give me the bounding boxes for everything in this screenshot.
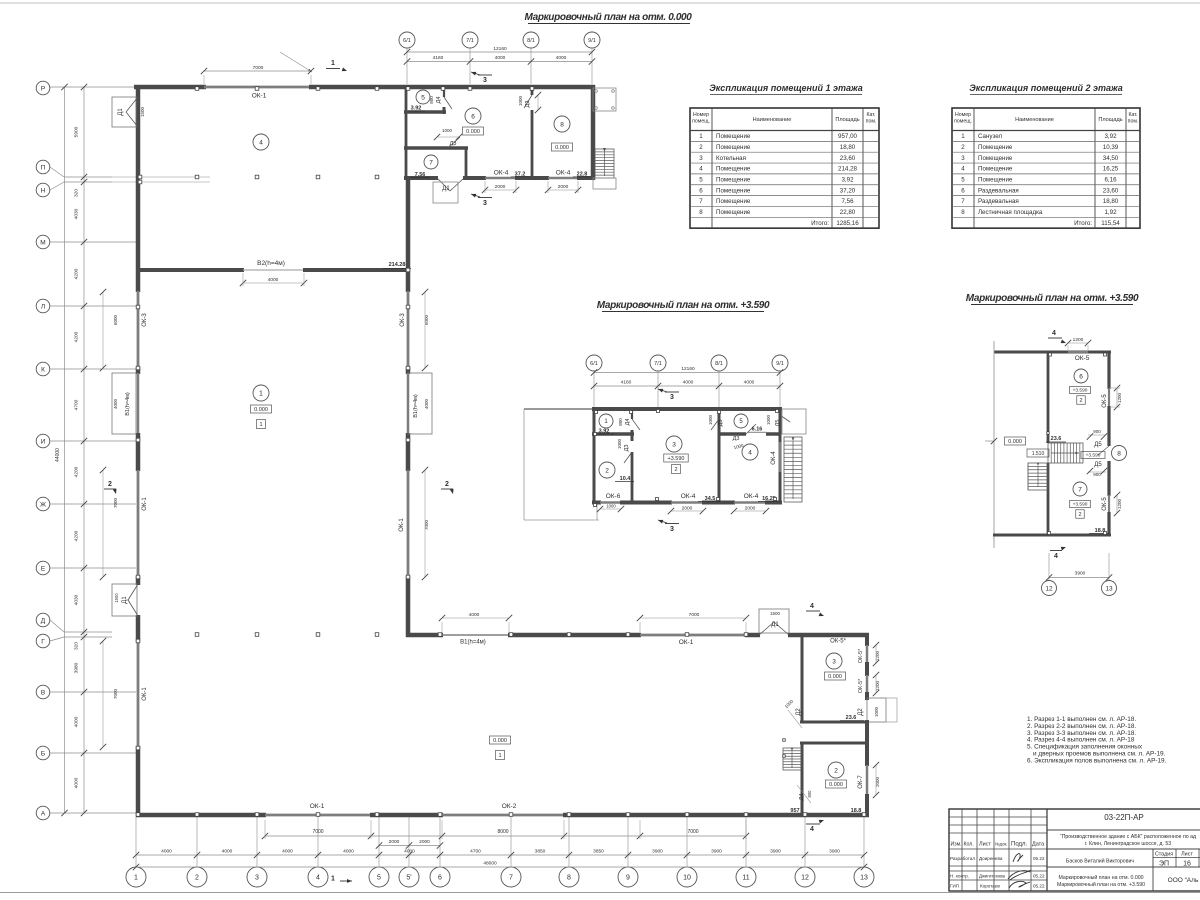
svg-text:ГИП: ГИП xyxy=(950,884,959,889)
svg-text:Номер: Номер xyxy=(955,112,971,118)
svg-text:6: 6 xyxy=(438,875,442,882)
svg-text:Д4: Д4 xyxy=(625,419,631,426)
svg-text:4000: 4000 xyxy=(113,398,118,409)
svg-text:3900: 3900 xyxy=(829,849,840,855)
svg-text:1: 1 xyxy=(259,391,263,398)
svg-text:1000: 1000 xyxy=(784,698,795,709)
svg-text:Лестничная площадка: Лестничная площадка xyxy=(978,209,1043,216)
svg-text:4000: 4000 xyxy=(343,849,354,855)
svg-text:4000: 4000 xyxy=(282,849,293,855)
svg-text:1: 1 xyxy=(259,422,262,428)
svg-text:ОК-3: ОК-3 xyxy=(400,313,406,327)
svg-text:Ж: Ж xyxy=(40,501,46,508)
svg-text:5: 5 xyxy=(377,875,381,882)
svg-text:3900: 3900 xyxy=(1075,571,1086,577)
svg-text:7/1: 7/1 xyxy=(654,361,662,367)
svg-text:Д3: Д3 xyxy=(718,420,724,427)
svg-text:“Производственное здание с АБК: “Производственное здание с АБК” располож… xyxy=(1060,834,1196,840)
svg-text:4000: 4000 xyxy=(744,380,755,386)
svg-text:2: 2 xyxy=(195,875,199,882)
svg-text:Помещение: Помещение xyxy=(716,187,751,194)
svg-text:6. Экспликация полов выполнена: 6. Экспликация полов выполнена см. л. АР… xyxy=(1027,757,1167,764)
svg-text:8/1: 8/1 xyxy=(715,361,723,367)
svg-text:03-22П-АР: 03-22П-АР xyxy=(1104,813,1144,822)
svg-text:+3.590: +3.590 xyxy=(1086,453,1101,459)
svg-text:ОК-1: ОК-1 xyxy=(142,687,148,701)
svg-text:ЭП: ЭП xyxy=(1159,861,1169,868)
svg-text:В: В xyxy=(41,689,45,696)
svg-text:пом.: пом. xyxy=(866,119,877,125)
svg-text:3.92: 3.92 xyxy=(599,429,610,435)
svg-text:Д4: Д4 xyxy=(799,794,805,801)
svg-text:4160: 4160 xyxy=(621,380,632,386)
svg-text:ОК-4: ОК-4 xyxy=(494,170,509,177)
svg-text:320: 320 xyxy=(74,189,80,197)
svg-text:ОК-5*: ОК-5* xyxy=(830,639,846,645)
svg-text:ОК-4: ОК-4 xyxy=(771,451,777,465)
svg-text:7: 7 xyxy=(961,198,965,205)
svg-text:Д5: Д5 xyxy=(1094,442,1102,448)
svg-text:3: 3 xyxy=(483,200,487,207)
svg-text:ОК-1: ОК-1 xyxy=(399,518,405,532)
svg-text:Подл.: Подл. xyxy=(1011,842,1028,848)
svg-text:3900: 3900 xyxy=(652,849,663,855)
svg-text:ОК-7: ОК-7 xyxy=(858,775,864,789)
svg-text:4000: 4000 xyxy=(424,398,429,409)
svg-text:320: 320 xyxy=(74,642,80,650)
svg-text:4030: 4030 xyxy=(74,208,80,219)
svg-text:2: 2 xyxy=(834,767,838,774)
svg-text:1200: 1200 xyxy=(1117,392,1122,403)
svg-text:4200: 4200 xyxy=(74,331,80,342)
svg-text:0.000: 0.000 xyxy=(555,145,569,151)
svg-text:ОК-3: ОК-3 xyxy=(142,313,148,327)
svg-text:214,28: 214,28 xyxy=(838,166,857,173)
svg-text:ОК-1: ОК-1 xyxy=(679,639,694,646)
svg-text:4030: 4030 xyxy=(74,594,80,605)
svg-text:7000: 7000 xyxy=(689,612,700,618)
svg-text:7000: 7000 xyxy=(253,65,264,71)
svg-text:0.000: 0.000 xyxy=(1008,439,1022,445)
svg-text:ОК-1: ОК-1 xyxy=(310,803,325,810)
svg-text:ОК-5: ОК-5 xyxy=(1075,355,1090,362)
svg-text:7.56: 7.56 xyxy=(415,172,426,178)
svg-text:05.22: 05.22 xyxy=(1033,856,1045,861)
svg-text:1500: 1500 xyxy=(140,106,145,117)
svg-text:1: 1 xyxy=(498,753,501,759)
svg-text:1000: 1000 xyxy=(617,438,622,449)
svg-text:Помещение: Помещение xyxy=(978,177,1013,184)
svg-text:4: 4 xyxy=(810,603,814,610)
svg-text:9: 9 xyxy=(626,875,630,882)
svg-text:214.28: 214.28 xyxy=(389,262,406,268)
svg-text:1000: 1000 xyxy=(874,706,879,717)
svg-text:Площадь: Площадь xyxy=(835,117,859,123)
svg-text:помещ.: помещ. xyxy=(692,119,710,125)
svg-text:05.22: 05.22 xyxy=(1033,884,1045,889)
svg-text:Кат.: Кат. xyxy=(1128,112,1137,118)
svg-text:4000: 4000 xyxy=(161,849,172,855)
svg-text:12: 12 xyxy=(801,875,809,882)
svg-text:2: 2 xyxy=(445,481,449,488)
svg-text:1200: 1200 xyxy=(1073,337,1084,343)
svg-text:Помещение: Помещение xyxy=(716,166,751,173)
svg-text:1: 1 xyxy=(699,133,703,140)
svg-text:957,00: 957,00 xyxy=(838,133,857,140)
svg-text:помещ.: помещ. xyxy=(954,119,972,125)
svg-text:4000: 4000 xyxy=(683,380,694,386)
svg-text:5: 5 xyxy=(961,177,965,184)
svg-text:7000: 7000 xyxy=(312,829,323,835)
svg-text:2000: 2000 xyxy=(745,506,756,512)
svg-text:18,80: 18,80 xyxy=(840,144,856,151)
svg-text:Д2: Д2 xyxy=(796,708,802,716)
svg-text:Джигитекова: Джигитекова xyxy=(979,874,1006,879)
svg-text:Кат.: Кат. xyxy=(866,112,875,118)
svg-text:Раздевальная: Раздевальная xyxy=(978,198,1019,205)
svg-text:0.000: 0.000 xyxy=(493,738,507,744)
svg-text:В1(h=4м): В1(h=4м) xyxy=(125,392,131,416)
svg-text:Г: Г xyxy=(41,638,45,645)
svg-text:3850: 3850 xyxy=(593,849,604,855)
svg-text:8: 8 xyxy=(567,875,571,882)
svg-text:1000: 1000 xyxy=(442,128,453,133)
svg-text:ОК-5*: ОК-5* xyxy=(858,678,864,693)
svg-text:6: 6 xyxy=(961,187,965,194)
svg-text:22,80: 22,80 xyxy=(840,209,856,216)
svg-text:3900: 3900 xyxy=(770,849,781,855)
svg-text:Маркировочный план на отм. 0.0: Маркировочный план на отм. 0.000 xyxy=(525,12,693,23)
svg-text:4700: 4700 xyxy=(74,399,80,410)
svg-text:7000: 7000 xyxy=(113,688,118,699)
svg-text:0.000: 0.000 xyxy=(466,129,480,135)
svg-text:5: 5 xyxy=(421,94,425,101)
svg-text:7: 7 xyxy=(1078,486,1082,493)
svg-text:16: 16 xyxy=(1183,861,1191,868)
svg-text:1000: 1000 xyxy=(606,504,616,509)
svg-text:1500: 1500 xyxy=(114,593,119,603)
svg-text:7: 7 xyxy=(429,159,433,166)
svg-text:В1(h=4м): В1(h=4м) xyxy=(460,640,486,646)
svg-text:Д5: Д5 xyxy=(775,420,781,427)
svg-text:Басков Виталий Викторович: Басков Виталий Викторович xyxy=(1066,858,1134,865)
svg-text:48000: 48000 xyxy=(483,861,497,867)
svg-text:3: 3 xyxy=(670,394,674,401)
svg-text:Раздевальная: Раздевальная xyxy=(978,187,1019,194)
svg-text:3850: 3850 xyxy=(535,849,546,855)
svg-text:2: 2 xyxy=(961,144,965,151)
svg-text:900: 900 xyxy=(1093,429,1101,434)
svg-text:№док.: №док. xyxy=(995,842,1008,847)
svg-text:8000: 8000 xyxy=(497,829,508,835)
svg-text:Д3: Д3 xyxy=(624,445,630,452)
svg-text:4200: 4200 xyxy=(74,268,80,279)
svg-text:6/1: 6/1 xyxy=(590,361,598,367)
svg-text:900: 900 xyxy=(1093,472,1101,477)
svg-text:3: 3 xyxy=(961,155,965,162)
svg-text:6: 6 xyxy=(699,187,703,194)
svg-text:8: 8 xyxy=(560,121,564,128)
svg-text:г. Клин, Ленинградское шоссе,: г. Клин, Ленинградское шоссе, д. 53 xyxy=(1085,841,1171,847)
svg-text:5': 5' xyxy=(406,875,411,882)
svg-text:4: 4 xyxy=(316,875,320,882)
svg-text:Маркировочный план на отм. 0.0: Маркировочный план на отм. 0.000 xyxy=(1059,874,1144,881)
svg-text:Е: Е xyxy=(41,565,46,572)
svg-text:1000: 1000 xyxy=(518,95,523,106)
svg-text:6: 6 xyxy=(471,113,475,120)
svg-text:16,25: 16,25 xyxy=(1103,166,1119,173)
svg-text:1,92: 1,92 xyxy=(1104,209,1117,216)
svg-text:4: 4 xyxy=(748,449,752,456)
svg-text:0.000: 0.000 xyxy=(829,782,843,788)
svg-text:6000: 6000 xyxy=(113,314,118,325)
svg-text:Д5: Д5 xyxy=(1094,462,1102,468)
svg-text:6,16: 6,16 xyxy=(1104,177,1117,184)
svg-text:Помещение: Помещение xyxy=(978,166,1013,173)
svg-text:Д2: Д2 xyxy=(858,708,864,716)
svg-text:6: 6 xyxy=(1079,373,1083,380)
svg-text:Маркировочный план на отм. +3.: Маркировочный план на отм. +3.590 xyxy=(966,293,1139,304)
svg-text:+3.590: +3.590 xyxy=(668,456,685,462)
svg-text:1000: 1000 xyxy=(766,414,771,425)
svg-text:2: 2 xyxy=(699,144,703,151)
svg-text:2000: 2000 xyxy=(495,184,506,190)
svg-text:Помещение: Помещение xyxy=(716,198,751,205)
svg-text:3: 3 xyxy=(832,658,836,665)
svg-text:9/1: 9/1 xyxy=(588,38,596,44)
svg-text:ООО “Аль: ООО “Аль xyxy=(1168,877,1199,884)
svg-text:Номер: Номер xyxy=(693,112,709,118)
svg-text:3: 3 xyxy=(255,875,259,882)
svg-text:8: 8 xyxy=(1117,450,1121,457)
svg-text:Д3: Д3 xyxy=(733,436,740,442)
svg-text:2000: 2000 xyxy=(389,839,400,845)
svg-text:2000: 2000 xyxy=(419,839,430,845)
svg-text:7000: 7000 xyxy=(113,497,118,508)
svg-text:ОК-4: ОК-4 xyxy=(744,493,759,500)
svg-text:13: 13 xyxy=(860,875,868,882)
svg-text:12160: 12160 xyxy=(681,366,695,372)
svg-text:8: 8 xyxy=(699,209,703,216)
svg-text:23,60: 23,60 xyxy=(1103,187,1119,194)
svg-text:ОК-5: ОК-5 xyxy=(1102,394,1108,408)
svg-text:пом.: пом. xyxy=(1128,119,1139,125)
svg-text:Помещение: Помещение xyxy=(978,155,1013,162)
svg-text:1: 1 xyxy=(331,876,335,883)
svg-text:44000: 44000 xyxy=(55,448,61,462)
svg-text:Площадь: Площадь xyxy=(1098,117,1122,123)
svg-text:4200: 4200 xyxy=(74,466,80,477)
svg-text:ОК-1: ОК-1 xyxy=(142,497,148,511)
svg-text:0.000: 0.000 xyxy=(254,407,268,413)
svg-text:3980: 3980 xyxy=(74,662,80,673)
svg-text:Р: Р xyxy=(41,85,45,92)
svg-text:18,80: 18,80 xyxy=(1103,198,1119,205)
svg-text:7: 7 xyxy=(699,198,703,205)
svg-text:9/1: 9/1 xyxy=(776,361,784,367)
svg-text:800: 800 xyxy=(618,418,623,426)
svg-text:1000: 1000 xyxy=(708,414,713,425)
svg-text:115,54: 115,54 xyxy=(1101,220,1120,227)
svg-text:5: 5 xyxy=(699,177,703,184)
svg-text:Наименование: Наименование xyxy=(1015,117,1054,123)
svg-text:4000: 4000 xyxy=(556,55,567,61)
svg-text:4000: 4000 xyxy=(404,849,415,855)
svg-text:ОК-1: ОК-1 xyxy=(252,93,267,100)
svg-text:4: 4 xyxy=(259,139,263,146)
svg-text:Помещение: Помещение xyxy=(716,144,751,151)
svg-text:Коротаев: Коротаев xyxy=(980,884,1000,889)
svg-text:957: 957 xyxy=(790,808,799,814)
svg-text:4: 4 xyxy=(1052,330,1056,337)
svg-text:Лист: Лист xyxy=(1181,852,1193,858)
svg-text:Кол.: Кол. xyxy=(964,842,974,848)
svg-text:7: 7 xyxy=(509,875,513,882)
svg-text:Д1: Д1 xyxy=(442,186,450,192)
svg-text:М: М xyxy=(40,239,45,246)
svg-text:2000: 2000 xyxy=(558,184,569,190)
svg-text:ОК-2: ОК-2 xyxy=(502,803,517,810)
svg-text:В1(h=4м): В1(h=4м) xyxy=(413,394,419,418)
svg-text:3,92: 3,92 xyxy=(841,177,854,184)
svg-text:3: 3 xyxy=(699,155,703,162)
svg-text:800: 800 xyxy=(429,96,434,104)
svg-text:ОК-4: ОК-4 xyxy=(681,493,696,500)
svg-text:3.92: 3.92 xyxy=(411,106,422,112)
svg-text:4000: 4000 xyxy=(268,277,279,283)
svg-text:23.6: 23.6 xyxy=(1051,436,1062,442)
svg-text:Д: Д xyxy=(41,617,46,624)
svg-text:23.6: 23.6 xyxy=(846,715,857,721)
svg-text:10,39: 10,39 xyxy=(1103,144,1119,151)
svg-text:12160: 12160 xyxy=(493,46,507,52)
svg-text:6/1: 6/1 xyxy=(403,38,411,44)
svg-text:К: К xyxy=(41,366,45,373)
svg-text:10: 10 xyxy=(683,875,691,882)
svg-text:Экспликация помещений 1 этажа: Экспликация помещений 1 этажа xyxy=(709,83,862,93)
svg-text:А: А xyxy=(41,810,46,817)
svg-text:Д1: Д1 xyxy=(122,596,128,604)
svg-text:34.5: 34.5 xyxy=(705,496,716,502)
svg-text:Экспликация помещений 2 этажа: Экспликация помещений 2 этажа xyxy=(969,83,1122,93)
svg-text:37,20: 37,20 xyxy=(840,187,856,194)
svg-text:И: И xyxy=(41,438,46,445)
svg-text:8/1: 8/1 xyxy=(527,38,535,44)
svg-text:2000: 2000 xyxy=(682,506,693,512)
svg-text:12: 12 xyxy=(1045,585,1053,592)
svg-text:3,92: 3,92 xyxy=(1104,133,1117,140)
svg-text:Маркировочный план на отм. +3.: Маркировочный план на отм. +3.590 xyxy=(597,300,770,311)
svg-text:Доиренева: Доиренева xyxy=(979,856,1003,861)
svg-text:3900: 3900 xyxy=(711,849,722,855)
svg-text:Д4: Д4 xyxy=(436,97,442,104)
svg-text:4: 4 xyxy=(699,166,703,173)
svg-text:Наименование: Наименование xyxy=(753,117,792,123)
svg-text:4700: 4700 xyxy=(470,849,481,855)
svg-text:05.22: 05.22 xyxy=(1033,874,1045,879)
svg-text:4: 4 xyxy=(810,826,814,833)
svg-text:1285,16: 1285,16 xyxy=(836,220,859,227)
svg-text:Б: Б xyxy=(41,750,45,757)
svg-text:+3.590: +3.590 xyxy=(1073,388,1088,394)
svg-text:4000: 4000 xyxy=(74,777,80,788)
svg-text:Помещение: Помещение xyxy=(716,209,751,216)
svg-text:6.16: 6.16 xyxy=(752,427,763,433)
svg-text:18.8: 18.8 xyxy=(851,808,862,814)
svg-text:5900: 5900 xyxy=(74,126,80,137)
svg-text:8: 8 xyxy=(961,209,965,216)
svg-text:1: 1 xyxy=(331,60,335,67)
svg-text:Изм.: Изм. xyxy=(951,842,962,848)
svg-text:ОК-6: ОК-6 xyxy=(606,493,621,500)
svg-text:3: 3 xyxy=(672,441,676,448)
svg-text:0.000: 0.000 xyxy=(828,674,842,680)
svg-text:4000: 4000 xyxy=(495,55,506,61)
svg-text:Котельная: Котельная xyxy=(716,155,746,162)
svg-text:Н: Н xyxy=(41,187,46,194)
svg-text:1500: 1500 xyxy=(770,611,781,616)
svg-text:Н. контр.: Н. контр. xyxy=(950,874,969,879)
svg-text:Дата: Дата xyxy=(1032,842,1045,848)
svg-text:13: 13 xyxy=(1105,585,1113,592)
svg-text:4: 4 xyxy=(961,166,965,173)
svg-text:4160: 4160 xyxy=(433,55,444,61)
svg-text:ОК-4: ОК-4 xyxy=(556,170,571,177)
svg-text:3: 3 xyxy=(483,77,487,84)
svg-text:Л: Л xyxy=(41,303,45,310)
svg-text:Помещение: Помещение xyxy=(716,133,751,140)
svg-text:7000: 7000 xyxy=(687,829,698,835)
svg-text:2: 2 xyxy=(108,481,112,488)
svg-text:2: 2 xyxy=(1079,398,1082,404)
svg-text:23,60: 23,60 xyxy=(840,155,856,162)
svg-text:1: 1 xyxy=(961,133,965,140)
svg-text:1.510: 1.510 xyxy=(1032,451,1045,457)
svg-text:Стадия: Стадия xyxy=(1155,852,1173,858)
svg-text:В2(h=4м): В2(h=4м) xyxy=(257,260,285,267)
svg-text:800: 800 xyxy=(807,790,812,798)
svg-text:3: 3 xyxy=(670,526,674,533)
svg-text:П: П xyxy=(41,164,46,171)
svg-text:Санузел: Санузел xyxy=(978,133,1002,140)
svg-text:4000: 4000 xyxy=(74,716,80,727)
svg-text:7/1: 7/1 xyxy=(466,38,474,44)
svg-text:1: 1 xyxy=(134,875,138,882)
svg-text:Д3: Д3 xyxy=(525,101,531,108)
svg-text:ОК-5: ОК-5 xyxy=(1102,497,1108,511)
svg-text:Итого:: Итого: xyxy=(1074,220,1092,227)
svg-text:2: 2 xyxy=(1078,512,1081,518)
svg-text:ОК-5*: ОК-5* xyxy=(858,648,864,663)
svg-text:Маркировочный план на отм. +3.: Маркировочный план на отм. +3.590 xyxy=(1057,881,1145,888)
svg-text:4000: 4000 xyxy=(222,849,233,855)
svg-text:7,56: 7,56 xyxy=(841,198,854,205)
svg-text:Помещение: Помещение xyxy=(978,144,1013,151)
svg-text:Помещение: Помещение xyxy=(716,177,751,184)
svg-text:11: 11 xyxy=(742,875,749,882)
svg-text:Разработал: Разработал xyxy=(950,856,975,861)
svg-text:2: 2 xyxy=(605,467,609,474)
svg-text:Д1: Д1 xyxy=(771,622,779,628)
svg-text:Лист: Лист xyxy=(979,842,991,848)
svg-text:+3.590: +3.590 xyxy=(1073,502,1088,508)
svg-text:4: 4 xyxy=(1054,553,1058,560)
svg-text:2: 2 xyxy=(674,467,677,473)
svg-text:4000: 4000 xyxy=(469,612,480,618)
svg-text:4200: 4200 xyxy=(74,530,80,541)
svg-text:Итого:: Итого: xyxy=(811,220,829,227)
svg-text:10.4: 10.4 xyxy=(620,476,632,482)
